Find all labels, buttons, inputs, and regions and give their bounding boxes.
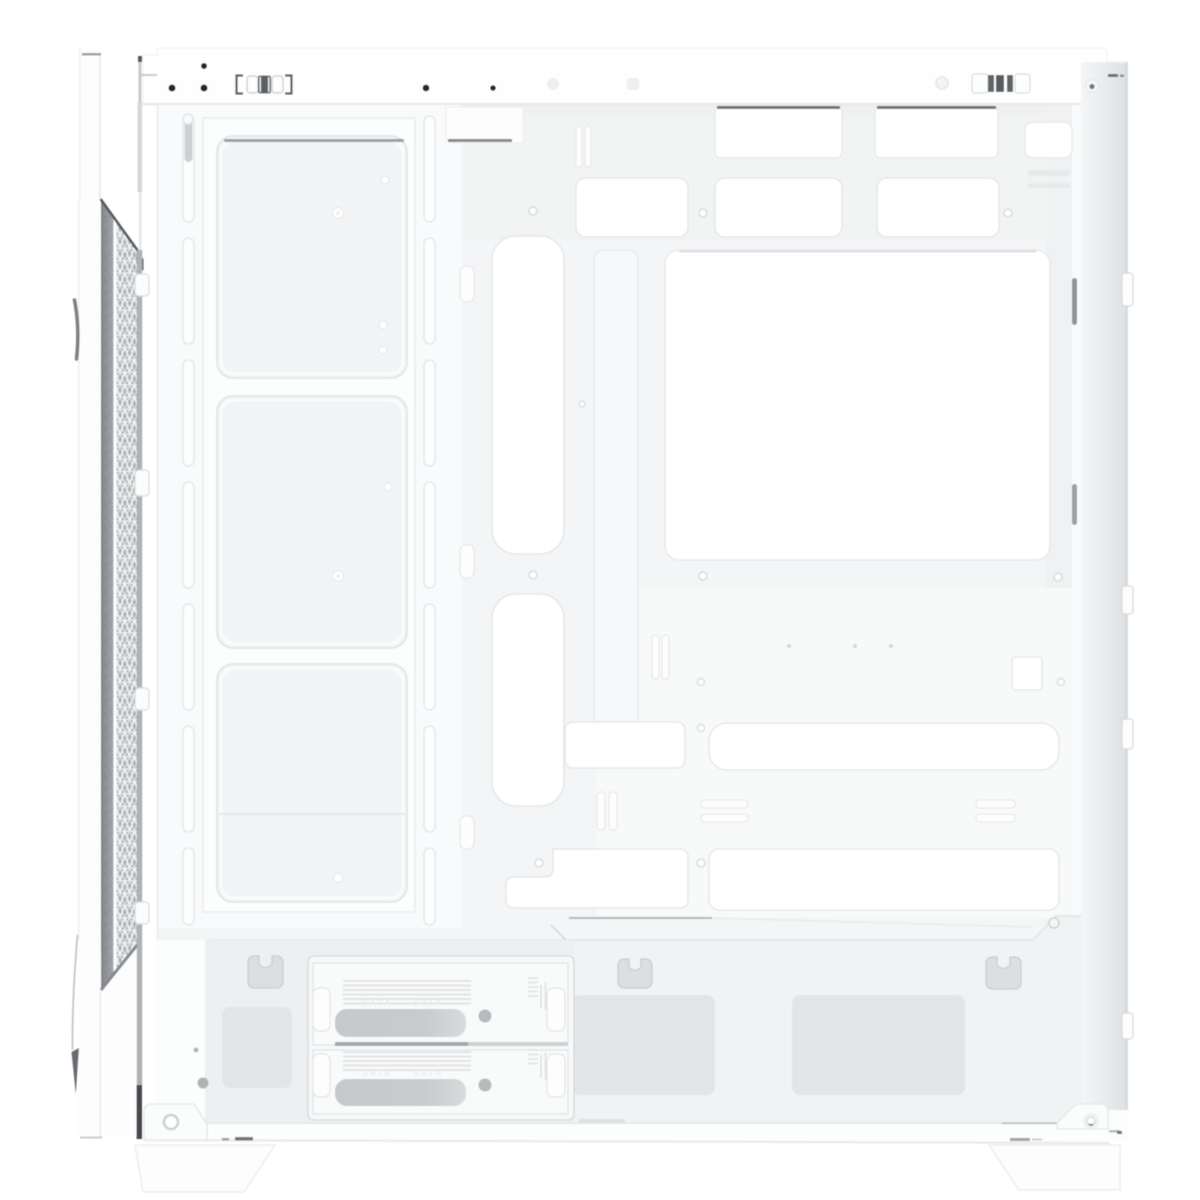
svg-text:SATA: SATA bbox=[413, 998, 443, 1008]
svg-text:SATA: SATA bbox=[413, 1068, 443, 1078]
svg-text:SATA: SATA bbox=[362, 1068, 392, 1078]
svg-text:SATA: SATA bbox=[362, 998, 392, 1008]
